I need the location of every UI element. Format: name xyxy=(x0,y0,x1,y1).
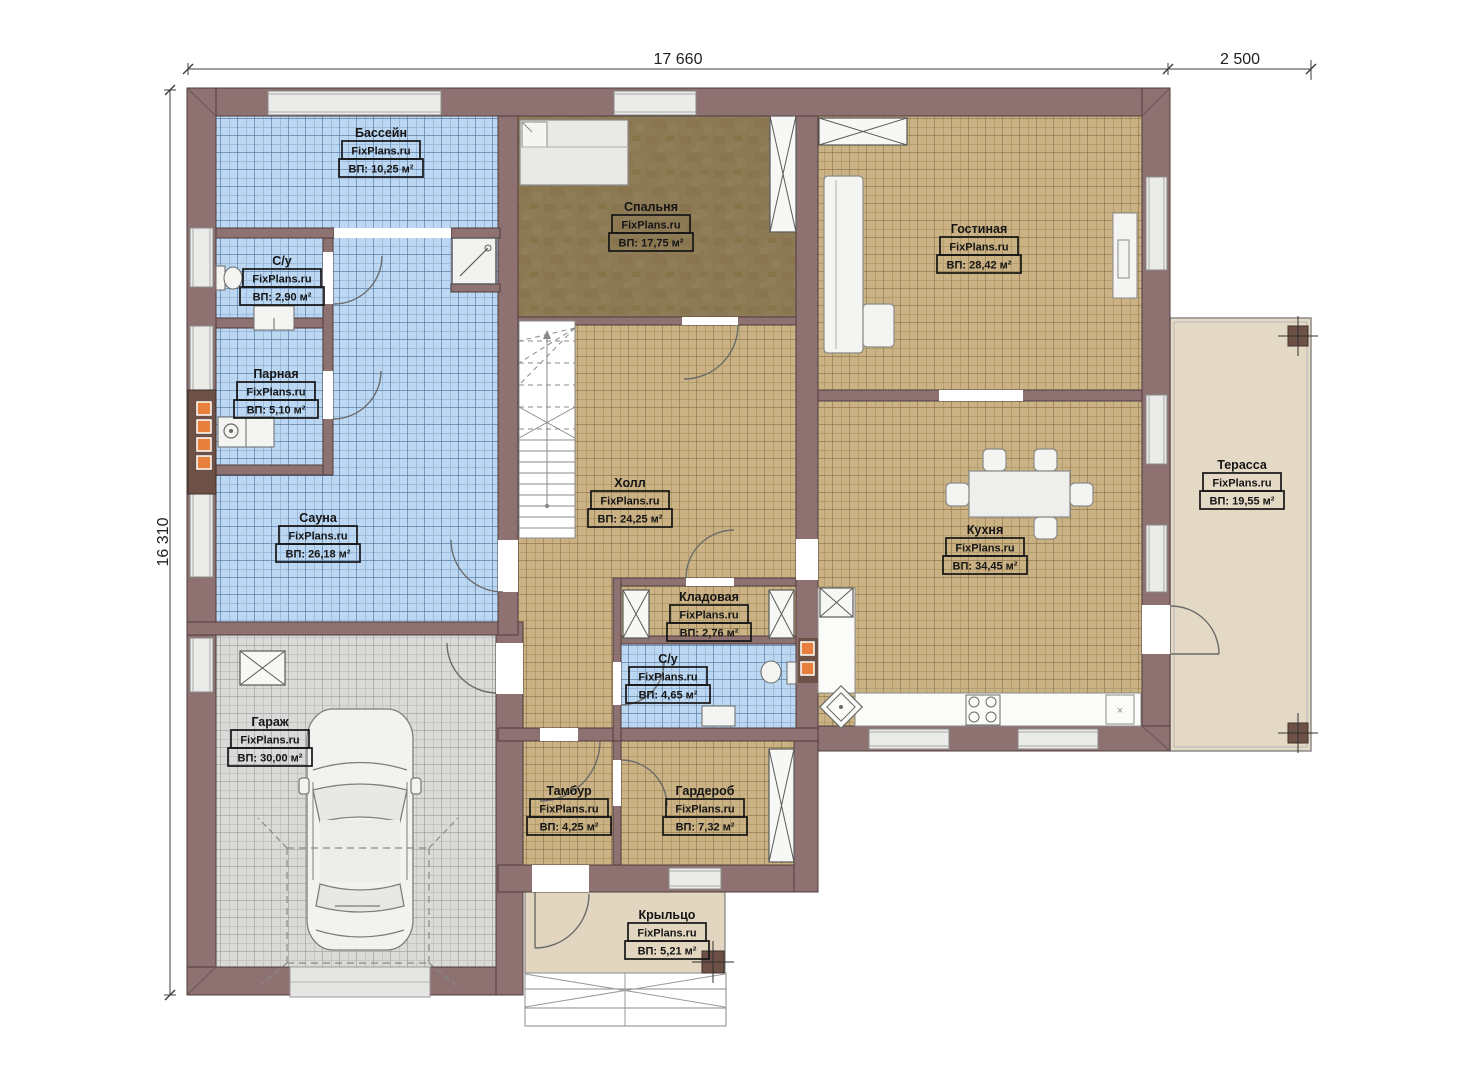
svg-text:FixPlans.ru: FixPlans.ru xyxy=(1212,478,1271,490)
svg-text:FixPlans.ru: FixPlans.ru xyxy=(288,531,347,543)
svg-text:Парная: Парная xyxy=(253,367,298,381)
svg-text:Гардероб: Гардероб xyxy=(675,784,734,798)
svg-text:Тамбур: Тамбур xyxy=(546,784,592,798)
svg-text:Холл: Холл xyxy=(614,476,645,490)
svg-text:ВП: 4,65 м²: ВП: 4,65 м² xyxy=(639,690,698,702)
svg-text:Кладовая: Кладовая xyxy=(679,590,739,604)
svg-text:FixPlans.ru: FixPlans.ru xyxy=(675,804,734,816)
svg-text:FixPlans.ru: FixPlans.ru xyxy=(955,543,1014,555)
svg-text:FixPlans.ru: FixPlans.ru xyxy=(539,804,598,816)
svg-text:ВП: 24,25 м²: ВП: 24,25 м² xyxy=(598,514,663,526)
svg-text:ВП: 5,21 м²: ВП: 5,21 м² xyxy=(638,946,697,958)
svg-text:ВП: 10,25 м²: ВП: 10,25 м² xyxy=(349,164,414,176)
svg-text:С/у: С/у xyxy=(272,254,292,268)
svg-text:ВП: 2,76 м²: ВП: 2,76 м² xyxy=(680,628,739,640)
svg-text:ВП: 30,00 м²: ВП: 30,00 м² xyxy=(238,753,303,765)
svg-text:ВП: 26,18 м²: ВП: 26,18 м² xyxy=(286,549,351,561)
svg-text:16 310: 16 310 xyxy=(155,517,172,566)
svg-text:ВП: 2,90 м²: ВП: 2,90 м² xyxy=(253,292,312,304)
svg-text:FixPlans.ru: FixPlans.ru xyxy=(621,220,680,232)
svg-text:FixPlans.ru: FixPlans.ru xyxy=(351,146,410,158)
svg-text:ВП: 7,32 м²: ВП: 7,32 м² xyxy=(676,822,735,834)
svg-text:FixPlans.ru: FixPlans.ru xyxy=(637,928,696,940)
svg-text:FixPlans.ru: FixPlans.ru xyxy=(679,610,738,622)
svg-text:Гостиная: Гостиная xyxy=(951,222,1008,236)
svg-text:FixPlans.ru: FixPlans.ru xyxy=(638,672,697,684)
svg-text:FixPlans.ru: FixPlans.ru xyxy=(600,496,659,508)
svg-text:2 500: 2 500 xyxy=(1220,51,1260,68)
svg-text:ВП: 5,10 м²: ВП: 5,10 м² xyxy=(247,405,306,417)
svg-text:С/у: С/у xyxy=(658,652,678,666)
svg-text:Спальня: Спальня xyxy=(624,200,678,214)
svg-text:Терасса: Терасса xyxy=(1217,458,1268,472)
svg-text:×: × xyxy=(1117,705,1123,717)
svg-text:FixPlans.ru: FixPlans.ru xyxy=(240,735,299,747)
svg-text:Кухня: Кухня xyxy=(967,523,1004,537)
svg-text:ВП: 34,45 м²: ВП: 34,45 м² xyxy=(953,561,1018,573)
svg-text:Гараж: Гараж xyxy=(251,715,288,729)
svg-text:Крыльцо: Крыльцо xyxy=(639,908,696,922)
svg-text:FixPlans.ru: FixPlans.ru xyxy=(949,242,1008,254)
svg-text:FixPlans.ru: FixPlans.ru xyxy=(252,274,311,286)
svg-text:ВП: 19,55 м²: ВП: 19,55 м² xyxy=(1210,496,1275,508)
svg-text:17 660: 17 660 xyxy=(654,51,703,68)
svg-text:ВП: 4,25 м²: ВП: 4,25 м² xyxy=(540,822,599,834)
svg-text:Сауна: Сауна xyxy=(299,511,338,525)
svg-text:FixPlans.ru: FixPlans.ru xyxy=(246,387,305,399)
svg-text:Бассейн: Бассейн xyxy=(355,126,407,140)
svg-text:ВП: 17,75 м²: ВП: 17,75 м² xyxy=(619,238,684,250)
svg-text:ВП: 28,42 м²: ВП: 28,42 м² xyxy=(947,260,1012,272)
